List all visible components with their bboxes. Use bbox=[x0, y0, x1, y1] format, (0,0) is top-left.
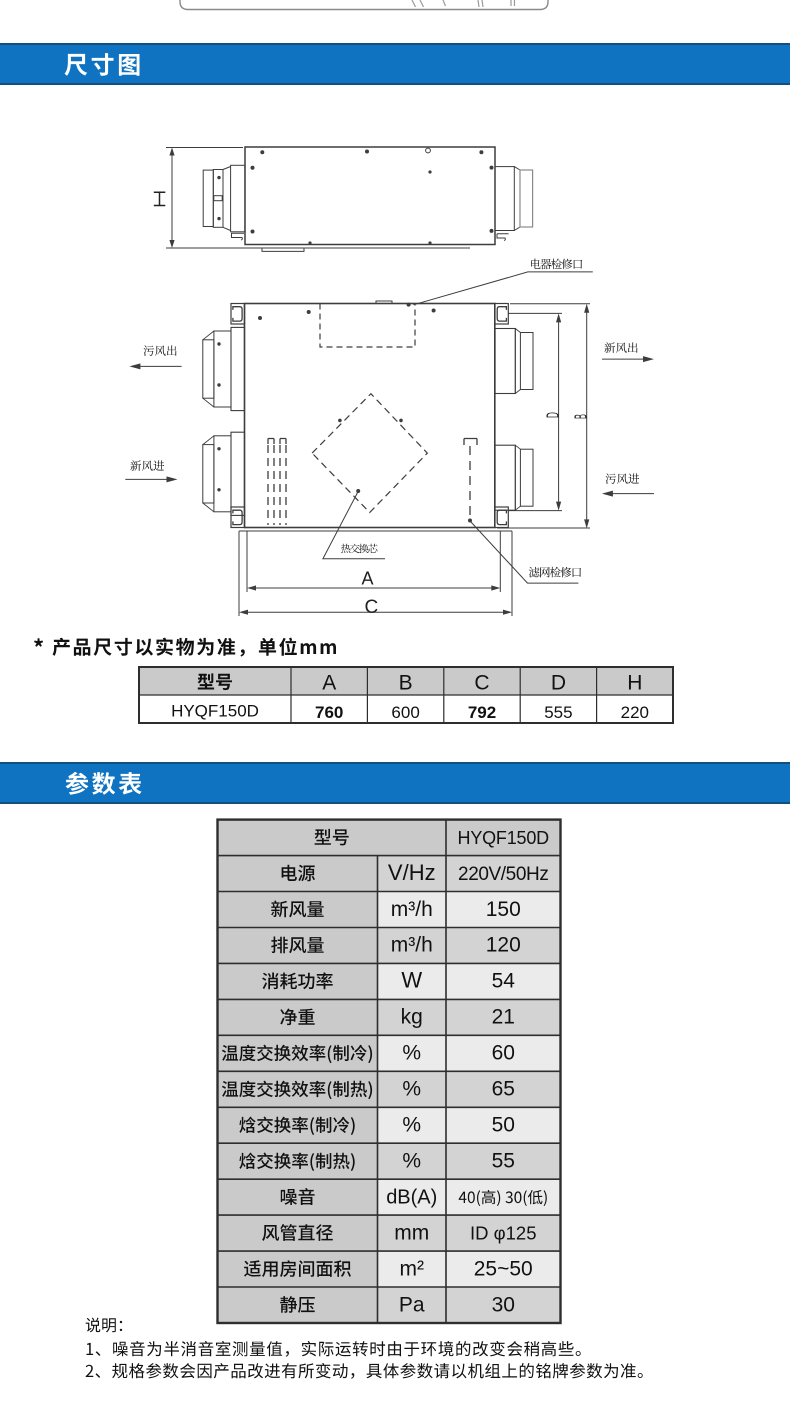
svg-text:kg: kg bbox=[401, 1006, 423, 1029]
svg-text:%: % bbox=[402, 1078, 421, 1101]
svg-text:dB(A): dB(A) bbox=[386, 1187, 437, 1209]
svg-text:m³/h: m³/h bbox=[391, 934, 433, 957]
svg-text:%: % bbox=[402, 1150, 421, 1173]
svg-text:V/Hz: V/Hz bbox=[388, 860, 436, 885]
svg-text:ID φ125: ID φ125 bbox=[470, 1222, 537, 1243]
svg-text:mm: mm bbox=[394, 1221, 429, 1244]
svg-text:Pa: Pa bbox=[399, 1293, 425, 1316]
svg-text:HYQF150D: HYQF150D bbox=[171, 702, 259, 721]
svg-text:55: 55 bbox=[492, 1150, 515, 1173]
svg-text:220V/50Hz: 220V/50Hz bbox=[458, 864, 548, 885]
svg-text:W: W bbox=[401, 968, 422, 993]
svg-text:60: 60 bbox=[492, 1042, 515, 1065]
svg-text:D: D bbox=[551, 672, 566, 695]
svg-text:%: % bbox=[402, 1042, 421, 1065]
svg-text:H: H bbox=[627, 672, 642, 695]
svg-text:C: C bbox=[474, 672, 489, 695]
svg-text:C: C bbox=[365, 597, 379, 618]
svg-text:65: 65 bbox=[492, 1078, 515, 1101]
svg-text:150: 150 bbox=[486, 898, 521, 921]
svg-text:A: A bbox=[362, 569, 374, 589]
svg-text:B: B bbox=[571, 414, 591, 419]
svg-text:120: 120 bbox=[486, 934, 521, 957]
svg-text:555: 555 bbox=[544, 703, 572, 722]
svg-text:50: 50 bbox=[492, 1114, 515, 1137]
svg-text:54: 54 bbox=[492, 970, 516, 993]
svg-text:m²: m² bbox=[400, 1257, 425, 1280]
svg-text:760: 760 bbox=[315, 703, 343, 722]
svg-text:m³/h: m³/h bbox=[391, 898, 433, 921]
svg-text:HYQF150D: HYQF150D bbox=[458, 828, 550, 848]
svg-text:792: 792 bbox=[468, 703, 496, 722]
svg-text:%: % bbox=[402, 1114, 421, 1137]
svg-text:D: D bbox=[542, 412, 563, 418]
svg-text:21: 21 bbox=[492, 1006, 515, 1029]
svg-text:B: B bbox=[399, 672, 413, 695]
svg-text:25~50: 25~50 bbox=[474, 1257, 533, 1280]
svg-text:A: A bbox=[322, 672, 336, 695]
svg-text:600: 600 bbox=[391, 703, 419, 722]
svg-text:30: 30 bbox=[492, 1293, 515, 1316]
svg-text:220: 220 bbox=[621, 703, 649, 722]
